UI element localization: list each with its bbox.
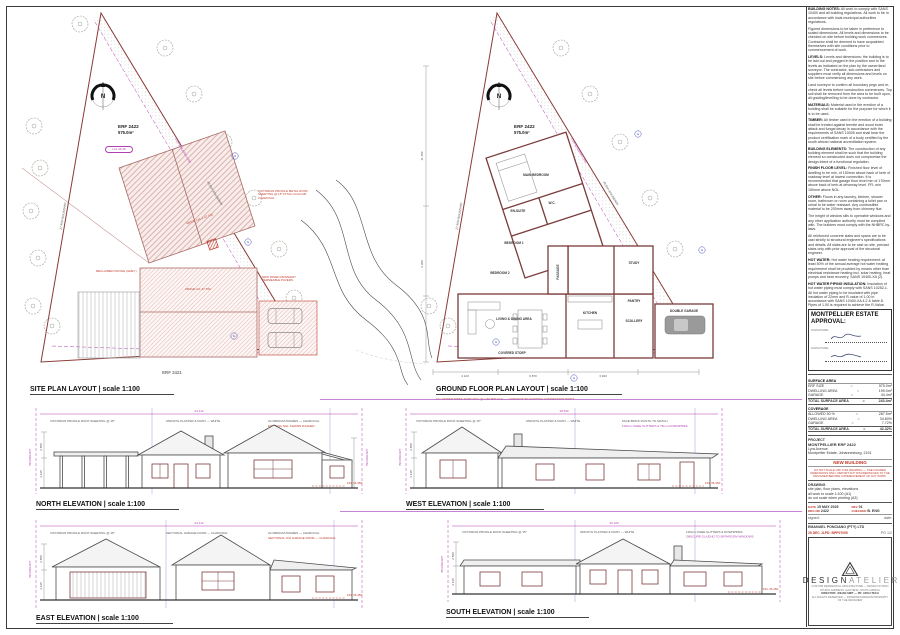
room-label: EN-SUITE bbox=[511, 209, 526, 213]
meta-checked: CHECKED B. ENG bbox=[852, 509, 893, 513]
svg-text:G: G bbox=[234, 154, 237, 158]
room-label: KITCHEN bbox=[583, 311, 598, 315]
tree-icon bbox=[440, 318, 456, 334]
tree-icon bbox=[271, 241, 287, 257]
project-block: PROJECT MONTPELLIER ERF 2422 Lyra Avenue… bbox=[808, 435, 892, 455]
north-letter: N bbox=[101, 94, 105, 100]
east-elevation-drawing: BOUNDARY 24 212 VICTORIAN PROFILE ROOF S… bbox=[16, 514, 382, 614]
logo-word-atelier: ATELIER bbox=[849, 576, 900, 585]
tree-icon bbox=[582, 86, 598, 102]
tree-icon bbox=[44, 318, 60, 334]
tree-icon bbox=[26, 118, 42, 134]
signature-line bbox=[825, 353, 887, 362]
north-elevation-title: NORTH ELEVATION | scale 1:100 bbox=[36, 501, 179, 510]
boundary-label: BOUNDARY bbox=[440, 556, 444, 573]
logo-tag-4: ALL RIGHTS RESERVED — DRAWINGS REMAIN PR… bbox=[811, 596, 889, 603]
garage-block bbox=[259, 301, 317, 355]
note-text: All reinforced concrete slabs and spans … bbox=[808, 234, 889, 255]
signature-scribble-icon bbox=[829, 332, 863, 342]
vertical-dims bbox=[411, 432, 417, 488]
neighbor-erf-label: ERF 2421 bbox=[162, 370, 182, 375]
room-label: BEDROOM 1 bbox=[504, 241, 524, 245]
drawing-block: DRAWING site plan, floor plans, elevatio… bbox=[808, 480, 892, 500]
boundary-label: BOUNDARY bbox=[365, 449, 369, 466]
spec-notes: VICTORIAN PROFILE ROOF SHEETING @ 15° SM… bbox=[416, 419, 688, 428]
vdim-label: 3 435 bbox=[39, 470, 43, 478]
svg-text:SMOOTH PLASTER & PAINT — WHITE: SMOOTH PLASTER & PAINT — WHITE bbox=[526, 419, 580, 423]
drawing-sheet: N ERF 2422 575.0m² G G G bbox=[0, 0, 900, 635]
logo-box: DESIGNATELIER CUSTOM RESIDENTIAL ARCHITE… bbox=[808, 537, 892, 626]
site-plan-title: SITE PLAN LAYOUT | scale 1:100 bbox=[30, 386, 174, 395]
svg-text:VICTORIAN PROFILE ROOF SHEETIN: VICTORIAN PROFILE ROOF SHEETING @ 15° bbox=[462, 530, 528, 534]
svg-text:VICTORIAN PROFILE ROOF SHEETIN: VICTORIAN PROFILE ROOF SHEETING @ 15° bbox=[50, 419, 116, 423]
boundary-label: BOUNDARY bbox=[28, 561, 32, 578]
dim-hairline bbox=[340, 511, 802, 512]
meta-drgnr: DRG NR 2422 bbox=[808, 509, 849, 513]
tree-icon bbox=[186, 86, 202, 102]
svg-text:11 450: 11 450 bbox=[420, 151, 424, 160]
room-label: BEDROOM 2 bbox=[490, 271, 510, 275]
house-outline bbox=[422, 427, 718, 488]
ffl-label: FFL 46.450 bbox=[705, 481, 721, 485]
svg-text:115mm OGEE GUTTERS & DOWNPIPES: 115mm OGEE GUTTERS & DOWNPIPES bbox=[686, 530, 742, 534]
note-text: Insulation of hot water piping must comp… bbox=[808, 282, 888, 307]
north-elevation-drawing: BOUNDARY BOUNDARY 24 212 VICTORIAN PROFI… bbox=[16, 402, 382, 500]
paving-note: RECLAIMED PAVING (GREY) bbox=[96, 270, 140, 273]
notes-paragraph: TIMBER: All timber used in the erection … bbox=[808, 118, 892, 144]
driveway-paving bbox=[78, 292, 140, 358]
tree-icon bbox=[30, 250, 46, 266]
house-outline bbox=[54, 425, 352, 488]
level-bubble: LVL 46.46 bbox=[105, 146, 133, 153]
house-outline bbox=[460, 539, 762, 594]
logo-word-design: DESIGN bbox=[803, 576, 849, 585]
overall-dim: 30 120 bbox=[609, 521, 619, 525]
tree-icon bbox=[25, 298, 41, 314]
svg-text:G: G bbox=[637, 132, 640, 136]
floor-plan-title: GROUND FLOOR PLAN LAYOUT | scale 1:100 bbox=[436, 386, 622, 395]
note-text: Land surveyor to confirm all boundary pe… bbox=[808, 83, 892, 100]
vdim-label: 2 580 bbox=[39, 443, 43, 451]
svg-text:G: G bbox=[701, 248, 704, 252]
status-badge: NEW BUILDING bbox=[808, 459, 892, 467]
svg-text:OBSCURE GLAZING TO BATHROOM WI: OBSCURE GLAZING TO BATHROOM WINDOWS bbox=[686, 535, 754, 539]
spec-notes: VICTORIAN PROFILE ROOF SHEETING @ 15° SM… bbox=[462, 530, 754, 539]
notes-paragraph: BUILDING NOTES: All work to comply with … bbox=[808, 7, 892, 24]
signature-line bbox=[825, 334, 887, 343]
titleblock: BUILDING NOTES: All work to comply with … bbox=[808, 7, 892, 626]
tree-icon bbox=[32, 160, 48, 176]
disclaimer-note: DO NOT SCALE OFF THIS DRAWING — USE FIGU… bbox=[808, 469, 892, 479]
boundary-label: BOUNDARY bbox=[398, 449, 402, 466]
page-number: PG 1/2 bbox=[881, 531, 892, 535]
date-label: date: bbox=[884, 516, 892, 520]
company-name: EMANUEL PONCIANO (PTY) LTD bbox=[808, 523, 892, 530]
svg-text:SECTIONAL GARAGE DOOR — CHARCO: SECTIONAL GARAGE DOOR — CHARCOAL bbox=[166, 531, 228, 535]
svg-text:SECTIONAL O/H GARAGE DOOR — CH: SECTIONAL O/H GARAGE DOOR — CHARCOAL bbox=[268, 536, 336, 540]
svg-text:G: G bbox=[247, 240, 250, 244]
notes-paragraph: HOT WATER: Hot water heating requirement… bbox=[808, 258, 892, 279]
dim-hairline bbox=[320, 399, 802, 400]
erf-label: ERF 2422 bbox=[514, 124, 535, 129]
east-elevation-title: EAST ELEVATION | scale 1:100 bbox=[36, 615, 173, 624]
registration-stamp: 25 DEC JLPD: BPP07/05/ bbox=[808, 531, 848, 535]
notes-paragraph: FINISH FLOOR LEVEL: Finished floor level… bbox=[808, 166, 892, 192]
approval-title-2: APPROVAL: bbox=[811, 319, 889, 326]
spec-notes: VICTORIAN PROFILE ROOF SHEETING @ 15° SE… bbox=[50, 531, 336, 540]
notes-paragraph: MATERIALS: Material used in the erection… bbox=[808, 103, 892, 116]
vdim-label: 3 435 bbox=[451, 578, 455, 586]
notes-paragraph: LEVELS: Levels and dimensions: the build… bbox=[808, 55, 892, 81]
tree-icon bbox=[157, 40, 173, 56]
logo-wordmark: DESIGNATELIER bbox=[803, 579, 900, 583]
driveway-note: NEW PAVED DRIVEWAY PERMEABLE PAVERS bbox=[262, 276, 314, 283]
svg-text:ALUMINIUM FRAMES — CHARCOAL: ALUMINIUM FRAMES — CHARCOAL bbox=[268, 531, 320, 535]
room-label: W.C. bbox=[549, 201, 556, 205]
table-row-total: TOTAL SURFACE AREA=243.4m² bbox=[808, 398, 892, 405]
room-label: DOUBLE GARAGE bbox=[670, 309, 698, 313]
boundary-label: BOUNDARY bbox=[28, 449, 32, 466]
roof-note: VICTORIAN PROFILE METAL ROOF SHEETING @ … bbox=[258, 190, 316, 200]
vdim-label: 2 580 bbox=[409, 443, 413, 451]
logo-tagline: CUSTOM RESIDENTIAL ARCHITECTURE — DESIGN… bbox=[811, 585, 889, 602]
meta-table: DATE 15 MAY 2025 REV 01 DRG NR 2422 CHEC… bbox=[808, 502, 892, 513]
svg-text:115mm OGEE GUTTERS & 75mm DOWN: 115mm OGEE GUTTERS & 75mm DOWNPIPES bbox=[622, 424, 688, 428]
south-elevation-drawing: BOUNDARY 30 120 VICTORIAN PROFILE ROOF S… bbox=[428, 514, 800, 608]
south-elevation-title: SOUTH ELEVATION | scale 1:100 bbox=[446, 609, 589, 618]
spec-notes: VICTORIAN PROFILE ROOF SHEETING @ 15° SM… bbox=[50, 419, 320, 428]
room-label: PANTRY bbox=[628, 299, 642, 303]
erf-area-label: 575.0m² bbox=[514, 130, 530, 135]
ridge-level-label-2: RIDGE LVL 47.700 bbox=[185, 287, 211, 291]
tree-icon bbox=[667, 241, 683, 257]
room-label: STUDY bbox=[629, 261, 641, 265]
svg-text:FACE BRICK PLINTH TO MATCH: FACE BRICK PLINTH TO MATCH bbox=[622, 419, 668, 423]
floor-plan-panel: N ERF 2422 575.0m² 2422 bbox=[418, 6, 716, 390]
drawing-line-3: do not scale when printing (A3) bbox=[808, 496, 892, 500]
north-letter: N bbox=[497, 94, 501, 100]
erf-area-label: 575.0m² bbox=[118, 130, 134, 135]
svg-text:VICTORIAN PROFILE ROOF SHEETIN: VICTORIAN PROFILE ROOF SHEETING @ 15° bbox=[416, 419, 482, 423]
ffl-label: FFL 46.450 bbox=[347, 593, 363, 597]
note-text: Figured dimensions to be taken in prefer… bbox=[808, 27, 889, 52]
tree-icon bbox=[23, 203, 39, 219]
notes-paragraph: HOT WATER PIPING INSULATION: Insulation … bbox=[808, 282, 892, 307]
room-label: SCULLERY bbox=[625, 319, 643, 323]
titleblock-divider bbox=[806, 6, 807, 627]
room-label: LIVING & DINING AREA bbox=[496, 317, 532, 321]
notes-paragraph: OTHER: Floors in any laundry, kitchen, s… bbox=[808, 195, 892, 212]
vdim-label: 2 580 bbox=[39, 555, 43, 563]
svg-text:SMOOTH PLASTER & PAINT — WHITE: SMOOTH PLASTER & PAINT — WHITE bbox=[166, 419, 220, 423]
vdim-label: 2 580 bbox=[451, 552, 455, 560]
tree-icon bbox=[72, 16, 88, 32]
west-elevation-title: WEST ELEVATION | scale 1:100 bbox=[406, 501, 544, 510]
project-address-2: Montpellier Estate, Johannesburg, 2191 bbox=[808, 451, 892, 455]
notes-paragraph: Land surveyor to confirm all boundary pe… bbox=[808, 83, 892, 100]
svg-text:6 870: 6 870 bbox=[529, 374, 537, 378]
note-text: All timber used in the erection of a bui… bbox=[808, 118, 892, 143]
notes-paragraph: All reinforced concrete slabs and spans … bbox=[808, 234, 892, 255]
notes-paragraph: Figured dimensions to be taken in prefer… bbox=[808, 27, 892, 53]
note-text: Finished floor level of dwelling to be m… bbox=[808, 166, 890, 191]
overall-dim: 24 212 bbox=[194, 409, 204, 413]
erf-label: ERF 2422 bbox=[118, 124, 139, 129]
tree-icon bbox=[553, 40, 569, 56]
room-label: MAIN BEDROOM bbox=[523, 173, 549, 177]
room-label: COVERED STOEP bbox=[498, 351, 526, 355]
svg-text:ALUMINIUM FRAMES — CHARCOAL: ALUMINIUM FRAMES — CHARCOAL bbox=[268, 419, 320, 423]
tree-icon bbox=[642, 190, 658, 206]
signature-scribble-icon bbox=[829, 351, 863, 361]
vdim-label: 3 435 bbox=[39, 582, 43, 590]
notes-paragraph: The height of window sills to openable w… bbox=[808, 214, 892, 231]
vertical-dims bbox=[41, 544, 47, 600]
sign-row: signed: date: bbox=[808, 514, 892, 520]
svg-text:3 940: 3 940 bbox=[599, 374, 607, 378]
signed-label: signed: bbox=[808, 516, 820, 520]
building-notes: BUILDING NOTES: All work to comply with … bbox=[808, 7, 892, 307]
room-label: PASSAGE bbox=[556, 264, 560, 279]
overall-dim: 18 540 bbox=[559, 409, 569, 413]
tree-icon bbox=[612, 134, 628, 150]
svg-text:VICTORIAN PROFILE ROOF SHEETIN: VICTORIAN PROFILE ROOF SHEETING @ 15° bbox=[50, 531, 116, 535]
ffl-label: FFL 46.450 bbox=[763, 587, 779, 591]
table-row-total: TOTAL SURFACE AREA=42.32% bbox=[808, 426, 892, 433]
surface-area-table: SURFACE AREA ERF SIZE=575.0m² DWELLING A… bbox=[808, 374, 892, 432]
overall-dim: 24 212 bbox=[194, 521, 204, 525]
west-elevation-drawing: BOUNDARY 18 540 VICTORIAN PROFILE ROOF S… bbox=[386, 402, 736, 500]
svg-text:4 120: 4 120 bbox=[461, 374, 469, 378]
house-outline bbox=[52, 535, 356, 600]
notes-paragraph: BUILDING ELEMENTS: The construction of a… bbox=[808, 147, 892, 164]
svg-text:SMOOTH PLASTER & PAINT — WHITE: SMOOTH PLASTER & PAINT — WHITE bbox=[580, 530, 634, 534]
svg-text:2 380: 2 380 bbox=[420, 260, 424, 268]
note-text: The height of window sills to openable w… bbox=[808, 214, 891, 231]
vdim-label: 3 435 bbox=[409, 470, 413, 478]
roof-plan-lower bbox=[140, 268, 257, 357]
approval-title-1: MONTPELLIER ESTATE bbox=[811, 312, 889, 319]
ffl-label: FFL 46.450 bbox=[347, 481, 363, 485]
stamp-row: 25 DEC JLPD: BPP07/05/ PG 1/2 bbox=[808, 531, 892, 535]
note-text: Levels and dimensions: the building is t… bbox=[808, 55, 889, 80]
logo-triangle-icon bbox=[841, 561, 859, 577]
svg-text:G: G bbox=[573, 376, 576, 380]
tree-icon bbox=[421, 298, 437, 314]
approval-box: MONTPELLIER ESTATE APPROVAL: SIGNATURE: … bbox=[808, 309, 892, 371]
